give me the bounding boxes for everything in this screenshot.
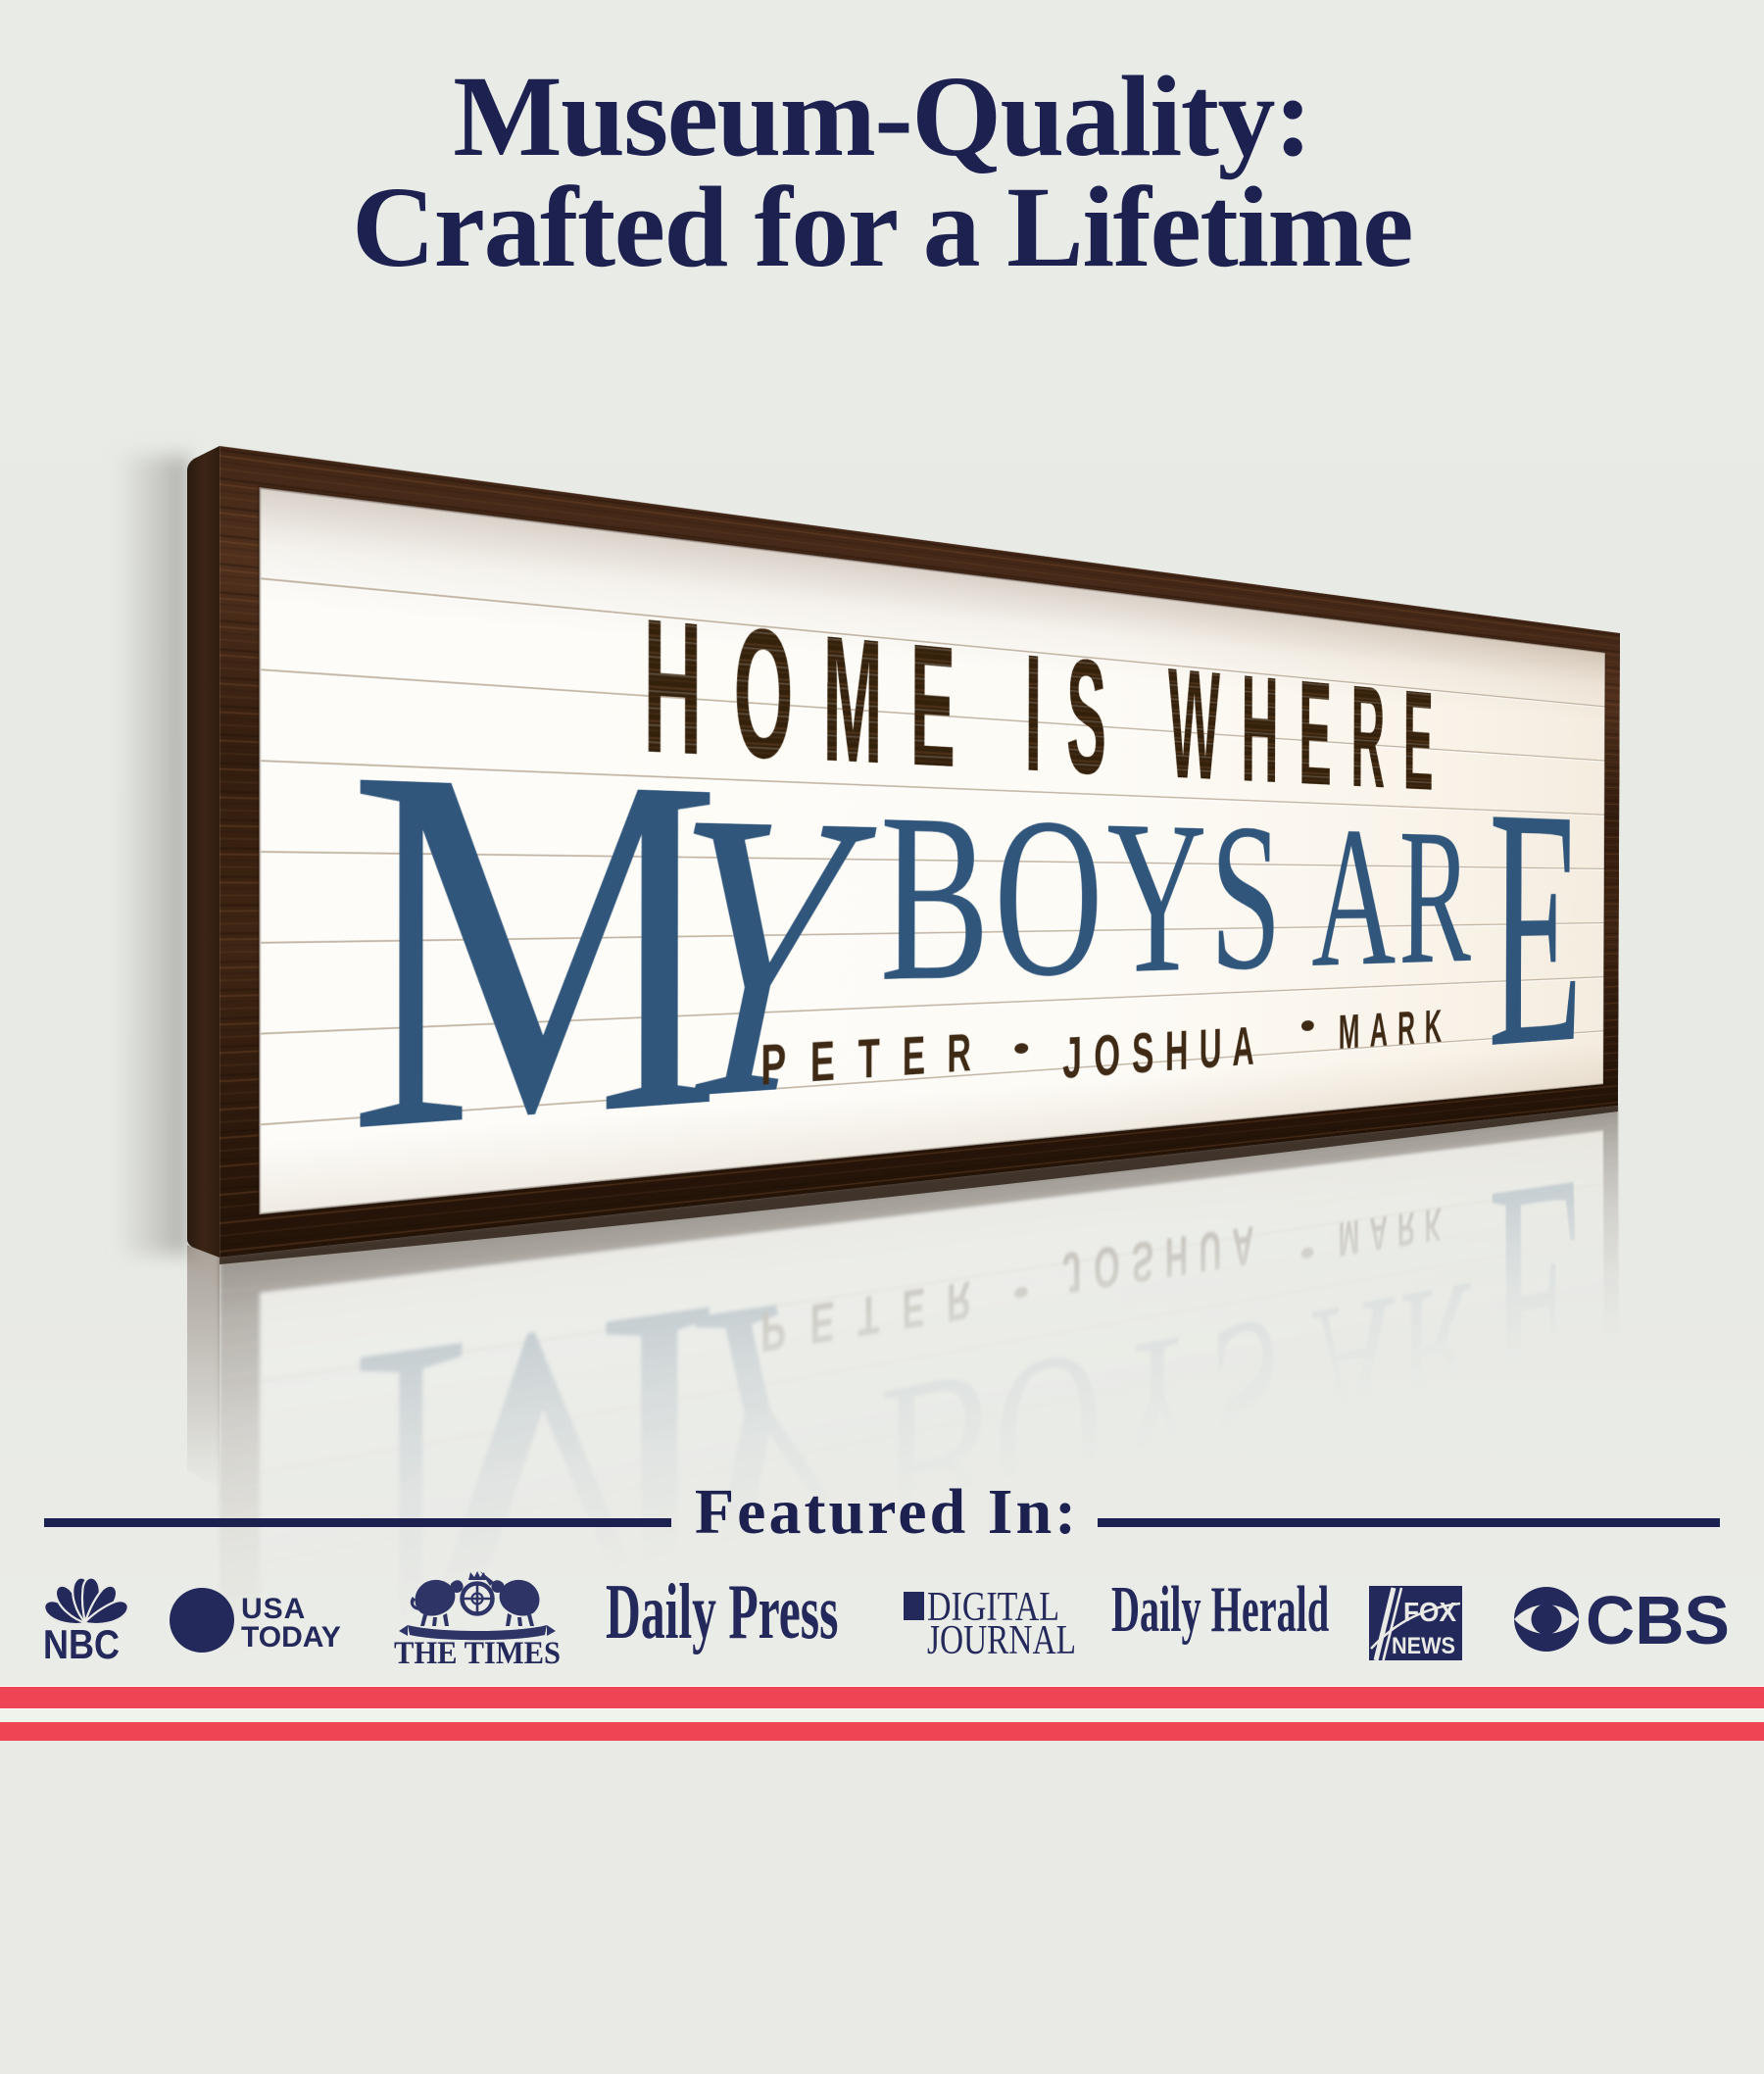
svg-text:NBC: NBC <box>43 1621 120 1662</box>
svg-text:THE TIMES: THE TIMES <box>394 1636 561 1667</box>
svg-text:CBS: CBS <box>1586 1584 1730 1654</box>
svg-text:TODAY: TODAY <box>241 1621 341 1654</box>
svg-text:JOURNAL: JOURNAL <box>927 1618 1076 1657</box>
svg-text:FOX: FOX <box>1403 1597 1456 1627</box>
svg-text:NEWS: NEWS <box>1392 1633 1455 1659</box>
